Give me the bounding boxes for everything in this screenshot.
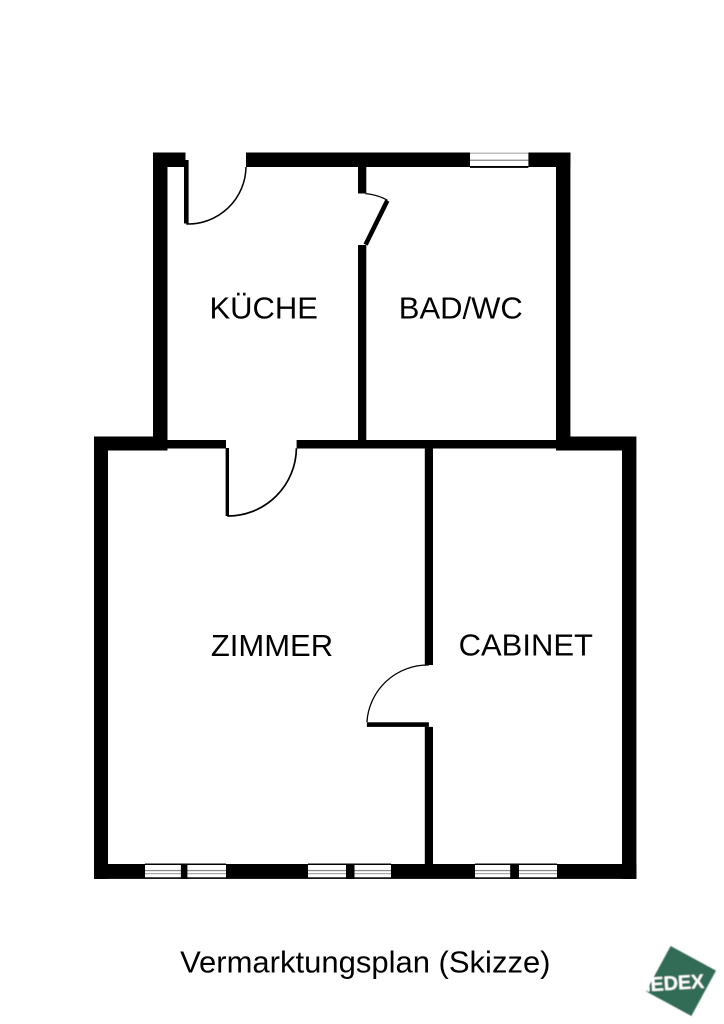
svg-text:BAD/WC: BAD/WC	[399, 291, 523, 326]
svg-text:KÜCHE: KÜCHE	[209, 291, 318, 326]
svg-text:MEDEX: MEDEX	[633, 971, 705, 997]
svg-text:Vermarktungsplan (Skizze): Vermarktungsplan (Skizze)	[180, 945, 550, 980]
svg-text:CABINET: CABINET	[459, 627, 593, 662]
svg-text:ZIMMER: ZIMMER	[211, 628, 333, 663]
